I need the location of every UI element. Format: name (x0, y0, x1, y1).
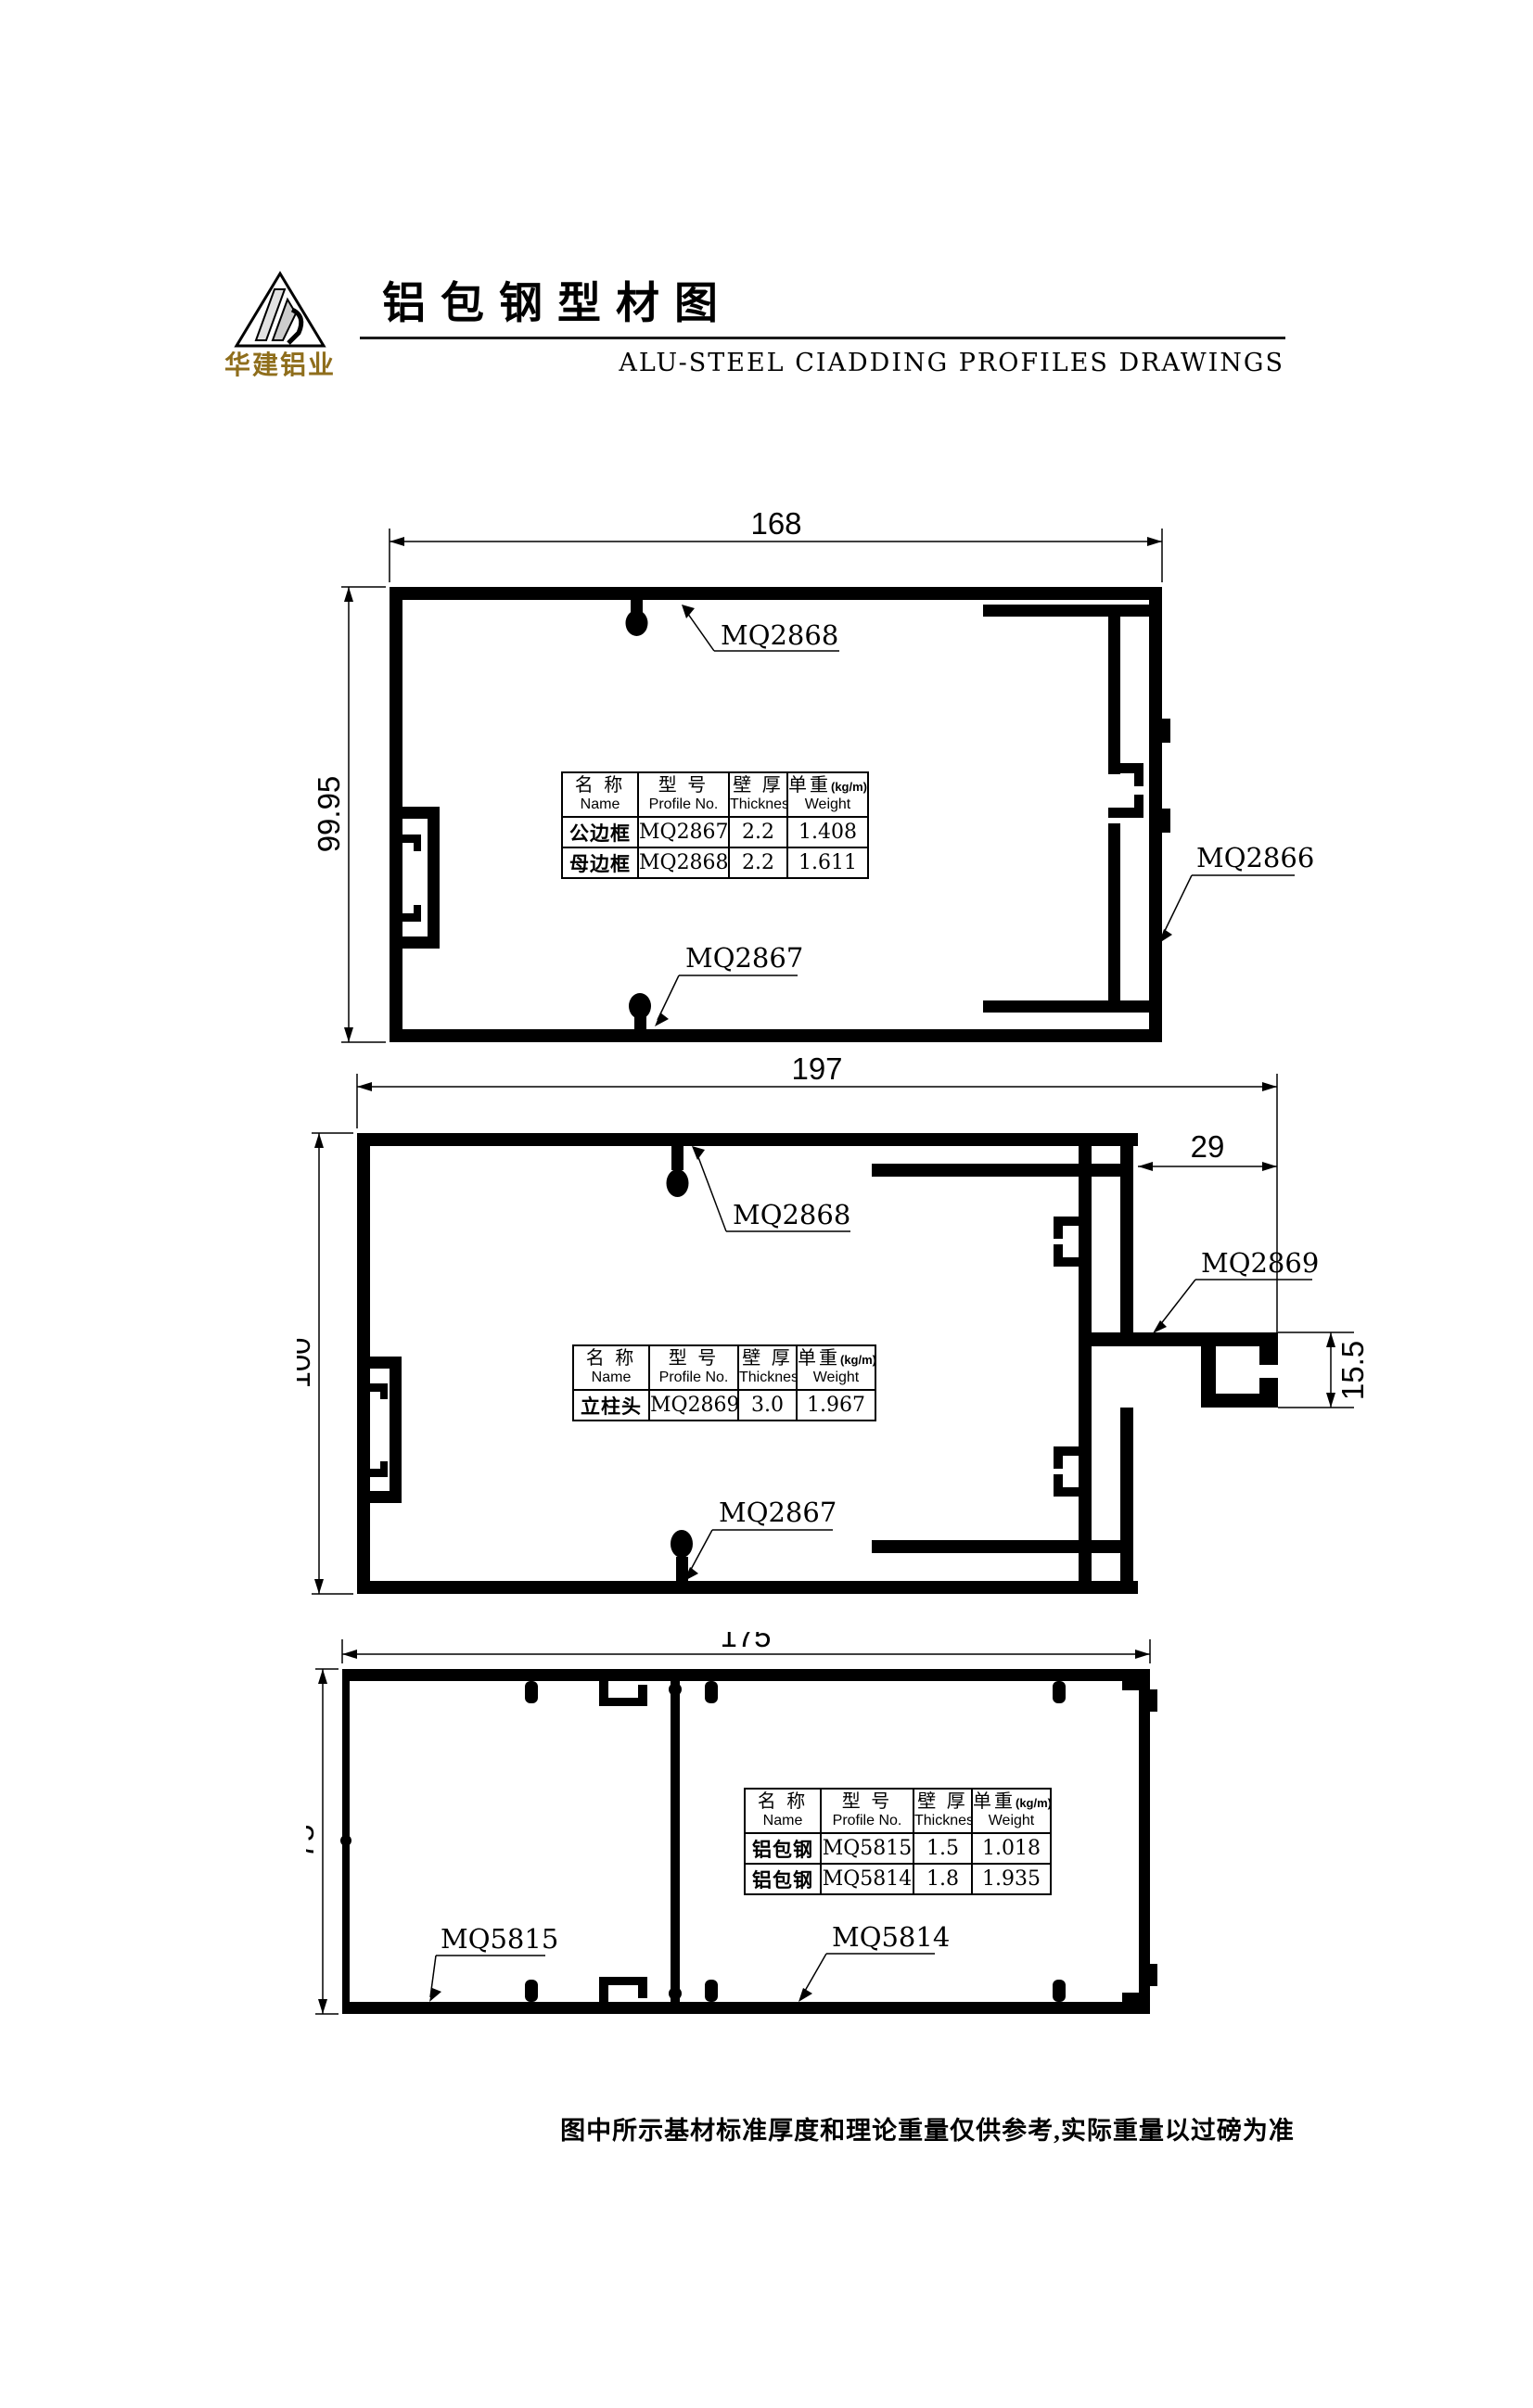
t3-header-thickness: 壁 厚Thickness (913, 1789, 972, 1833)
t1-header-name: 名 称Name (562, 772, 638, 817)
d3-top-tabs (525, 1681, 1066, 1706)
d1-leader-top-arrow (682, 605, 695, 618)
t1-r2-weight: 1.611 (787, 847, 868, 878)
t1-r1-weight: 1.408 (787, 817, 868, 847)
d2-leader-arm (1156, 1280, 1312, 1330)
d2-leader-top-arrow (692, 1146, 705, 1160)
d1-label-top: MQ2868 (721, 619, 838, 651)
d1-leader-bottom-arrow (655, 1013, 669, 1026)
t3-r1-profile: MQ5815 (821, 1833, 913, 1864)
d1-height-dimension: 99.95 (315, 776, 346, 853)
page-title: 铝包钢型材图 (382, 267, 733, 331)
t1-r1-name: 公边框 (562, 817, 638, 847)
d2-leader-bottom (687, 1530, 833, 1576)
t3-r1-name: 铝包钢 (745, 1833, 821, 1864)
t2-header-weight: 单重(kg/m) Weight (797, 1345, 875, 1390)
d3-height-dimension: 75 (306, 1825, 320, 1859)
d2-arm-height-dimension: 15.5 (1335, 1341, 1370, 1400)
t1-r2-name: 母边框 (562, 847, 638, 878)
d1-leader-right (1162, 875, 1295, 936)
t1-header-weight: 单重(kg/m) Weight (787, 772, 868, 817)
t2-header-thickness: 壁 厚Thickness (738, 1345, 797, 1390)
d2-label-bottom: MQ2867 (719, 1497, 837, 1528)
t2-header-profile-no: 型 号Profile No. (649, 1345, 738, 1390)
d3-bottom-tabs (525, 1977, 1066, 2002)
t1-r1-profile: MQ2867 (638, 817, 729, 847)
company-logo-icon (234, 271, 326, 349)
t3-r2-name: 铝包钢 (745, 1864, 821, 1894)
reference-note: 图中所示基材标准厚度和理论重量仅供参考,实际重量以过磅为准 (519, 2110, 1335, 2147)
d2-width-dimension: 197 (791, 1057, 842, 1086)
d1-top-anchor-detail (626, 600, 648, 636)
d2-label-top: MQ2868 (733, 1199, 850, 1230)
d1-label-right: MQ2866 (1196, 842, 1314, 873)
spec-table-1: 名 称Name 型 号Profile No. 壁 厚Thickness 单重(k… (561, 771, 869, 879)
t2-r1-thickness: 3.0 (738, 1390, 797, 1421)
d3-width-dimension: 175 (720, 1632, 771, 1653)
drawing-sheet: 华建铝业 铝包钢型材图 ALU-STEEL CIADDING PROFILES … (0, 0, 1533, 2408)
d1-bottom-anchor-detail (629, 993, 651, 1029)
t2-r1-weight: 1.967 (797, 1390, 875, 1421)
t2-row-1: 立柱头 MQ2869 3.0 1.967 (573, 1390, 875, 1421)
d3-leader-right (801, 1954, 935, 1997)
company-name: 华建铝业 (217, 345, 343, 382)
d2-mullion-arm (1079, 1332, 1278, 1408)
t2-r1-name: 立柱头 (573, 1390, 649, 1421)
d3-divider-wall (669, 1681, 682, 2002)
d3-leader-right-arrow (798, 1988, 812, 2002)
t1-row-2: 母边框 MQ2868 2.2 1.611 (562, 847, 868, 878)
d2-top-anchor-detail (667, 1146, 689, 1197)
t1-header-profile-no: 型 号Profile No. (638, 772, 729, 817)
t1-r2-thickness: 2.2 (729, 847, 787, 878)
d2-arm-offset-dimension: 29 (1191, 1129, 1225, 1164)
t3-r2-thickness: 1.8 (913, 1864, 972, 1894)
t3-row-1: 铝包钢 MQ5815 1.5 1.018 (745, 1833, 1051, 1864)
d1-label-bottom: MQ2867 (685, 942, 803, 974)
header-divider (360, 337, 1285, 339)
spec-table-2: 名 称Name 型 号Profile No. 壁 厚Thickness 单重(k… (572, 1344, 876, 1421)
t1-r1-thickness: 2.2 (729, 817, 787, 847)
t3-r1-thickness: 1.5 (913, 1833, 972, 1864)
d2-leader-arm-arrow (1153, 1320, 1167, 1333)
d2-left-clip-detail (370, 1357, 402, 1503)
t2-r1-profile: MQ2869 (649, 1390, 738, 1421)
d1-width-dimension: 168 (750, 506, 801, 541)
t3-r2-profile: MQ5814 (821, 1864, 913, 1894)
d3-label-right: MQ5814 (832, 1921, 950, 1953)
d2-label-arm: MQ2869 (1201, 1247, 1319, 1279)
t1-r2-profile: MQ2868 (638, 847, 729, 878)
page-subtitle: ALU-STEEL CIADDING PROFILES DRAWINGS (450, 349, 1284, 377)
t2-header-name: 名 称Name (573, 1345, 649, 1390)
t3-r2-weight: 1.935 (972, 1864, 1051, 1894)
t1-row-1: 公边框 MQ2867 2.2 1.408 (562, 817, 868, 847)
t3-header-weight: 单重(kg/m) Weight (972, 1789, 1051, 1833)
spec-table-3: 名 称Name 型 号Profile No. 壁 厚Thickness 单重(k… (744, 1788, 1052, 1895)
t3-row-2: 铝包钢 MQ5814 1.8 1.935 (745, 1864, 1051, 1894)
t1-header-thickness: 壁 厚Thickness (729, 772, 787, 817)
d2-height-dimension: 100 (297, 1337, 316, 1388)
t3-r1-weight: 1.018 (972, 1833, 1051, 1864)
t3-header-name: 名 称Name (745, 1789, 821, 1833)
t3-header-profile-no: 型 号Profile No. (821, 1789, 913, 1833)
d3-label-left: MQ5815 (441, 1923, 558, 1955)
d1-leader-bottom (658, 975, 798, 1020)
profile-drawing-2: 197 29 15.5 100 (297, 1057, 1456, 1669)
d1-left-clip-detail (402, 807, 440, 949)
